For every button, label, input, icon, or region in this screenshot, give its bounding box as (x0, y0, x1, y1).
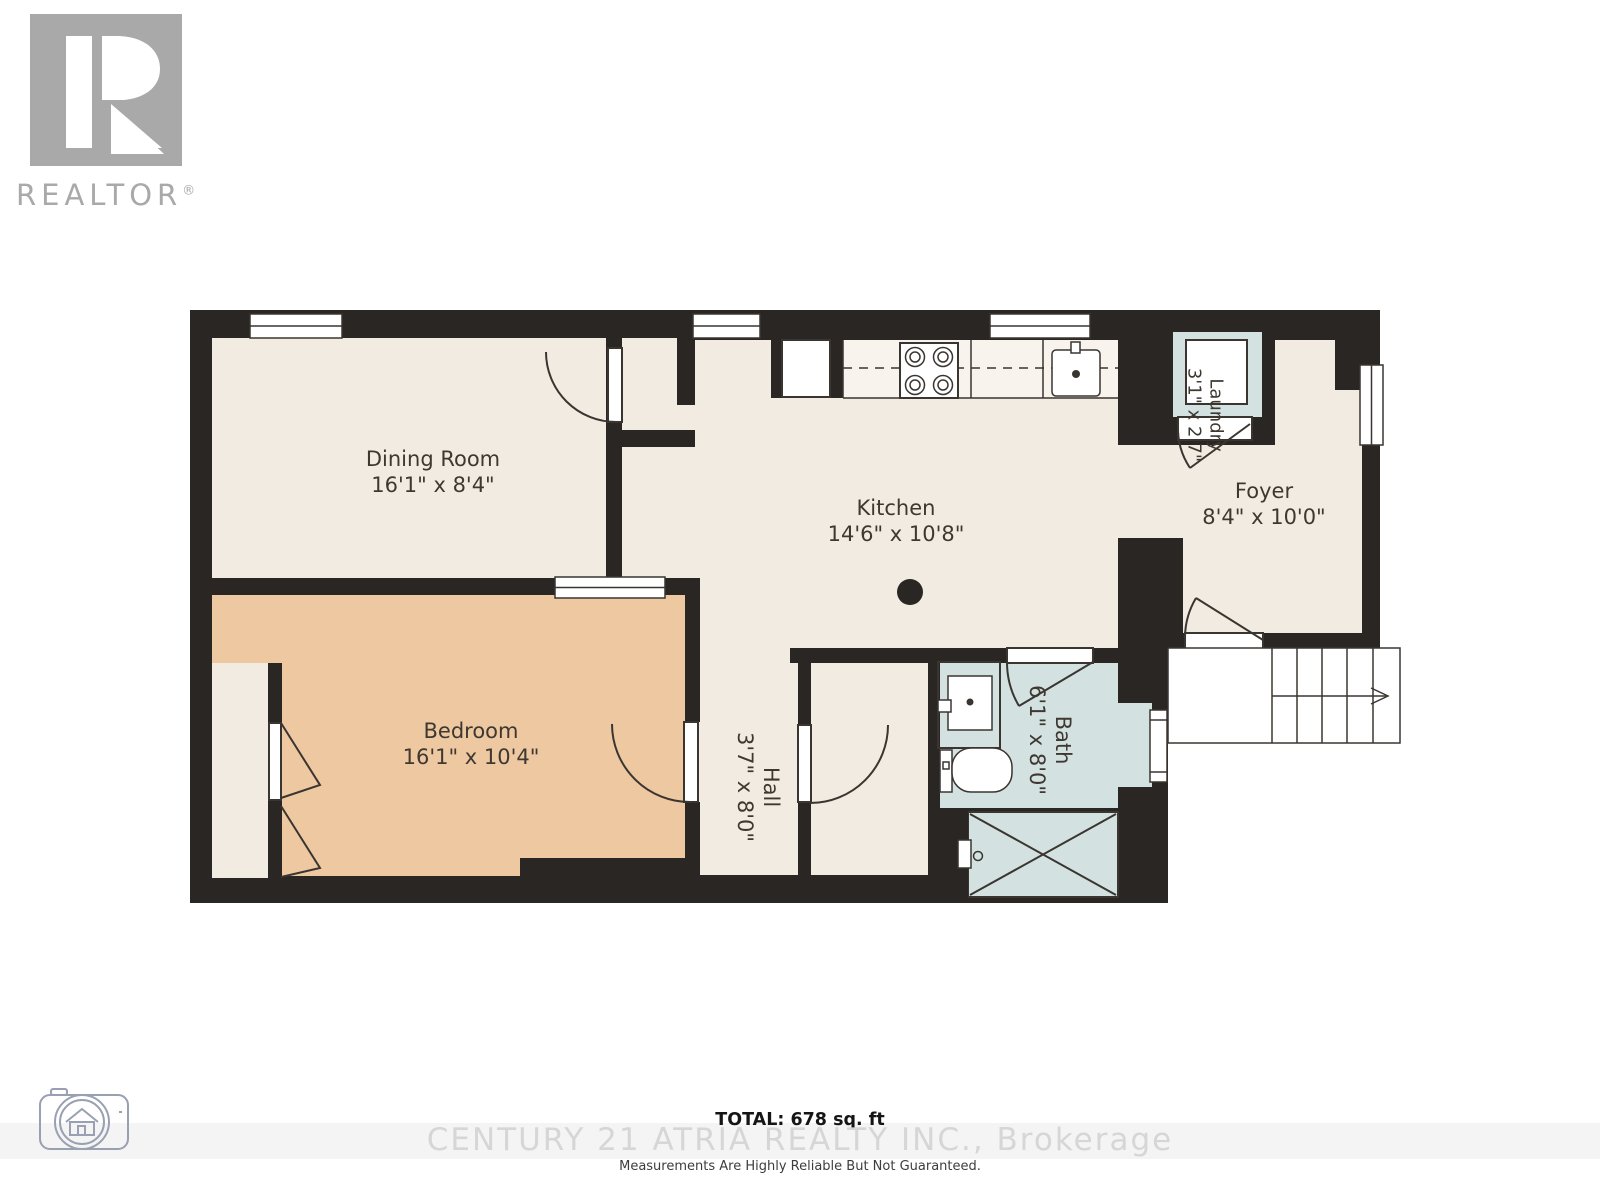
window (250, 314, 342, 338)
stove (900, 343, 958, 398)
fridge (782, 340, 830, 397)
window (990, 314, 1090, 338)
camera-house-icon (34, 1082, 144, 1162)
room-label-kitchen: Kitchen14'6" x 10'8" (828, 495, 965, 547)
floorplan-page: REALTOR® (0, 0, 1600, 1200)
room-label-dining: Dining Room16'1" x 8'4" (366, 446, 500, 498)
room-label-hall: Hall3'7" x 8'0" (732, 732, 784, 842)
bath-side-door (1150, 710, 1167, 782)
room-label-foyer: Foyer8'4" x 10'0" (1202, 478, 1325, 530)
window (1360, 365, 1383, 445)
room-label-bath: Bath6'1" x 8'0" (1024, 685, 1076, 795)
floorplan-drawing (0, 0, 1600, 1200)
stairs (1168, 648, 1400, 743)
toilet (940, 748, 1012, 792)
kitchen-sink (1052, 342, 1100, 396)
window (555, 577, 665, 598)
measurement-disclaimer: Measurements Are Highly Reliable But Not… (619, 1159, 981, 1174)
kitchen-dot (897, 579, 923, 605)
room-label-bedroom: Bedroom16'1" x 10'4" (403, 718, 540, 770)
closet-floor (212, 663, 270, 878)
room-label-laundry: Laundry3'1" x 2'7" (1182, 368, 1227, 462)
brokerage-watermark: CENTURY 21 ATRIA REALTY INC., Brokerage (427, 1122, 1173, 1158)
window (693, 314, 760, 338)
den-floor (811, 663, 928, 875)
